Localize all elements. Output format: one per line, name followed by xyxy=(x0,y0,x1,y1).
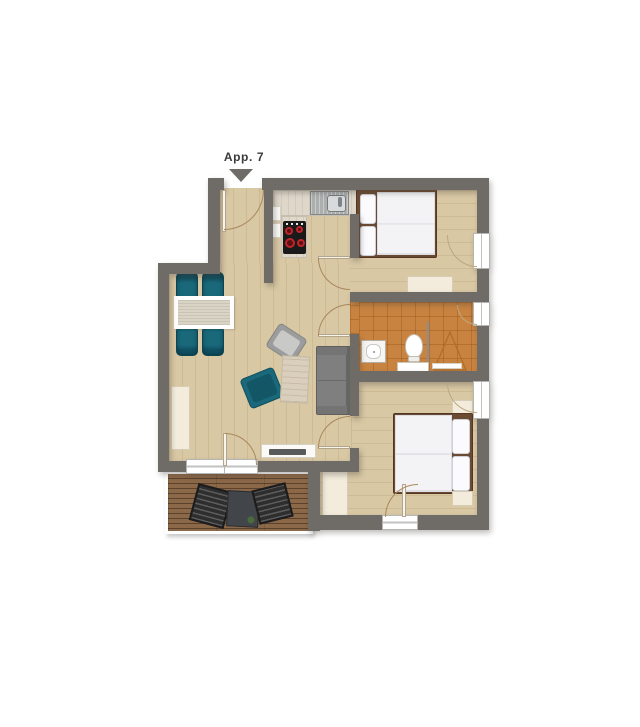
window-swing xyxy=(447,383,477,413)
bedroom-2-door-swing xyxy=(318,416,350,448)
window-swing xyxy=(447,235,477,267)
apartment-label: App. 7 xyxy=(206,150,282,164)
entrance-marker-icon xyxy=(229,169,253,182)
doors-layer xyxy=(0,0,640,727)
floorplan-apartment-7: App. 7 xyxy=(0,0,640,727)
window-swing xyxy=(457,305,477,325)
bathroom-door-swing xyxy=(318,304,350,336)
bedroom-2-exterior-door-swing xyxy=(385,484,418,517)
entrance-door-swing xyxy=(224,190,264,230)
terrace-door-swing xyxy=(225,433,257,465)
bedroom-1-door-swing xyxy=(318,258,350,290)
